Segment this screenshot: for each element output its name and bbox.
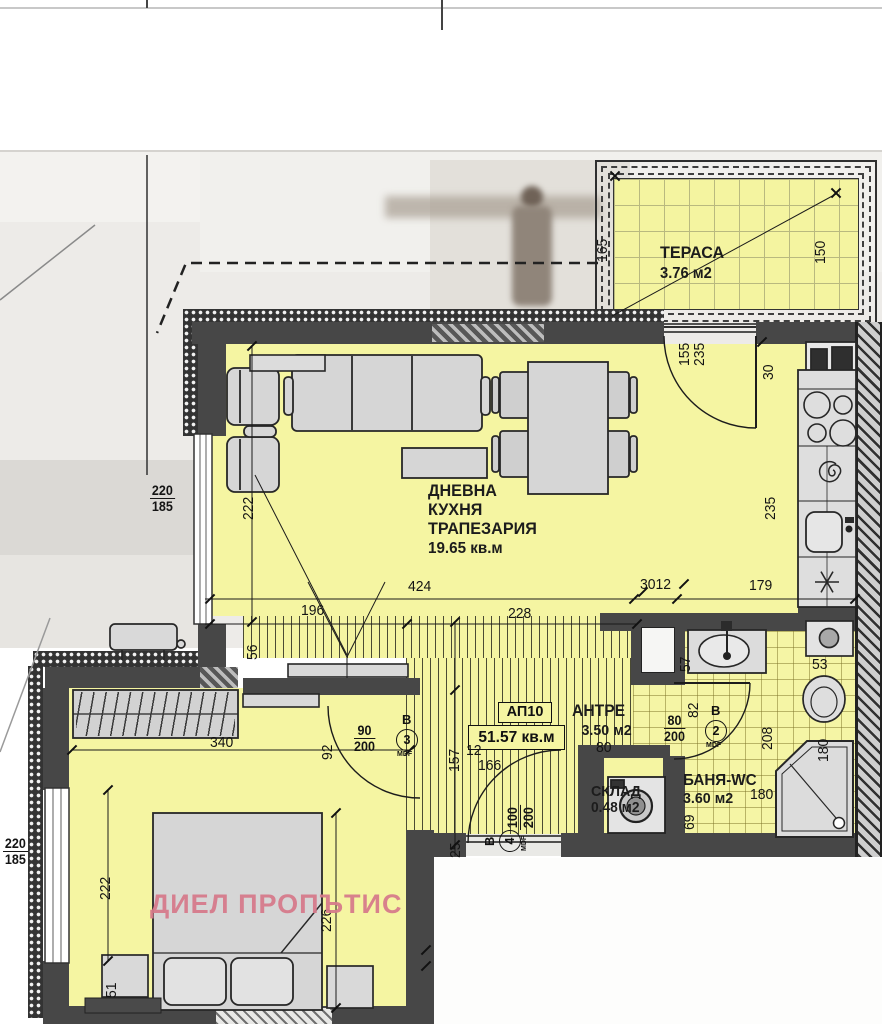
dimension-label: 157 [446,749,463,772]
fraction-top: 100 [505,805,521,830]
wardrobe-hatch [76,692,235,736]
door-letter: В [402,712,411,727]
fraction-top: 220 [3,836,28,852]
bench [85,998,161,1013]
dimension-label: 69 [681,814,698,830]
dimension-label: 180 [750,786,773,803]
fraction-bottom: 200 [521,807,536,828]
dimension-label: 165 [594,239,611,262]
dimension-label: 30 [760,364,777,380]
antre-name: АНТРЕ [572,702,625,720]
dimension-fraction: 80200 [664,713,685,744]
dimension-label: 424 [408,578,431,595]
apartment-area-box: 51.57 кв.м [468,725,565,750]
terrace-name: ТЕРАСА [660,243,724,262]
living-room-label: ДНЕВНА КУХНЯ ТРАПЕЗАРИЯ 19.65 кв.м [428,481,537,558]
dimension-label: 340 [210,734,233,751]
dimension-fraction: 100200 [505,805,536,830]
living-name-2: КУХНЯ [428,500,482,519]
door-number-circle: 3 [396,729,418,751]
bathroom-sink [688,621,766,673]
dimension-label: 57 [677,656,694,672]
storage-label: СКЛАД 0.48 м2 [591,784,641,816]
living-area: 19.65 кв.м [428,540,503,557]
door-letter: В [711,703,720,718]
antre-label: АНТРЕ 3.50 м2 [572,702,632,740]
storage-name: СКЛАД [591,783,641,800]
fraction-bottom: 185 [152,499,173,514]
door-number-circle: 4 [499,830,521,852]
dimension-lines [0,194,855,1008]
terrace-area: 3.76 м2 [660,265,712,282]
dimension-label: 53 [812,656,828,673]
living-name-1: ДНЕВНА [428,481,497,500]
armchair [227,368,279,492]
terrace-label: ТЕРАСА 3.76 м2 [660,243,724,283]
bathroom-name: БАНЯ-WC [683,772,757,789]
door-material: MDF [521,836,528,851]
dimension-fraction: 90200 [354,723,375,754]
dimension-label: 180 [815,739,832,762]
fraction-bottom: 200 [664,729,685,744]
dimension-label: 235 [691,343,708,366]
nightstand [327,966,373,1008]
apartment-number-box: АП10 [498,702,552,723]
fraction-top: 220 [150,483,175,499]
antre-area: 3.50 м2 [582,722,632,739]
dimension-label: 235 [762,497,779,520]
toilet [803,621,853,722]
dimension-label: 80 [596,739,612,756]
dining-set [492,362,637,494]
fraction-bottom: 185 [5,852,26,867]
dimension-label: 222 [97,877,114,900]
door-letter: В [482,837,497,846]
coffee-table [402,448,487,478]
tv-shelf [250,355,325,371]
dimension-label: 51 [103,982,120,998]
dimension-label: 196 [301,602,324,619]
projection-dashed-line [157,263,598,333]
watermark: ДИЕЛ ПРОПЪТИС [150,889,402,920]
dimension-label: 208 [759,727,776,750]
dimension-label: 150 [812,241,829,264]
bathroom-area: 3.60 м2 [683,790,733,807]
living-name-3: ТРАПЕЗАРИЯ [428,519,537,538]
bathroom-label: БАНЯ-WC 3.60 м2 [683,772,757,808]
storage-area: 0.48 м2 [591,800,639,816]
dimension-label: 222 [240,497,257,520]
dimension-fraction: 220185 [150,483,175,514]
floor-plan: ТЕРАСА 3.76 м2 ДНЕВНА КУХНЯ ТРАПЕЗАРИЯ 1… [0,0,882,1024]
dimension-label: 179 [749,577,772,594]
dimension-label: 228 [508,605,531,622]
fraction-top: 80 [664,713,685,729]
fraction-bottom: 200 [354,739,375,754]
apartment-number: АП10 [507,704,544,720]
dimension-label: 166 [478,757,501,774]
dimension-label: 56 [244,644,261,660]
dimension-label: 92 [319,744,336,760]
door-number-circle: 2 [705,720,727,742]
dimension-label: 82 [685,702,702,718]
door-material: MDF [706,742,721,749]
radiator [110,624,185,660]
fraction-top: 90 [354,723,375,739]
kitchen-counter [798,342,856,607]
apartment-total-area: 51.57 кв.м [478,729,554,746]
dimension-fraction: 220185 [3,836,28,867]
sliding-door-panels [243,664,408,707]
